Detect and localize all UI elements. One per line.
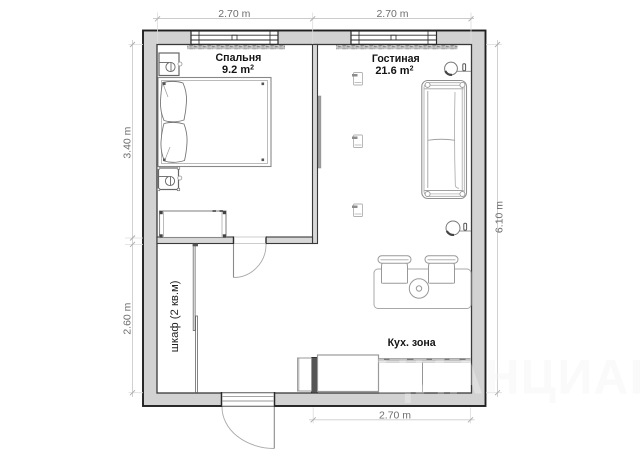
svg-text:2.60 m: 2.60 m	[122, 302, 134, 334]
svg-text:ЦИАНЦИАН: ЦИАНЦИАН	[376, 352, 640, 405]
svg-text:2.70 m: 2.70 m	[376, 8, 408, 20]
svg-text:6.10 m: 6.10 m	[493, 201, 505, 233]
svg-text:Кух. зона: Кух. зона	[388, 337, 436, 349]
svg-text:2.70 m: 2.70 m	[379, 409, 411, 421]
svg-text:Гостиная: Гостиная	[372, 53, 420, 65]
svg-text:3.40 m: 3.40 m	[122, 126, 134, 158]
svg-text:2.70 m: 2.70 m	[218, 8, 250, 20]
svg-text:21.6 m2: 21.6 m2	[375, 65, 413, 77]
svg-text:шкаф (2 кв.м): шкаф (2 кв.м)	[169, 280, 181, 352]
svg-text:Спальня: Спальня	[216, 52, 262, 64]
svg-text:9.2 m2: 9.2 m2	[222, 64, 254, 76]
